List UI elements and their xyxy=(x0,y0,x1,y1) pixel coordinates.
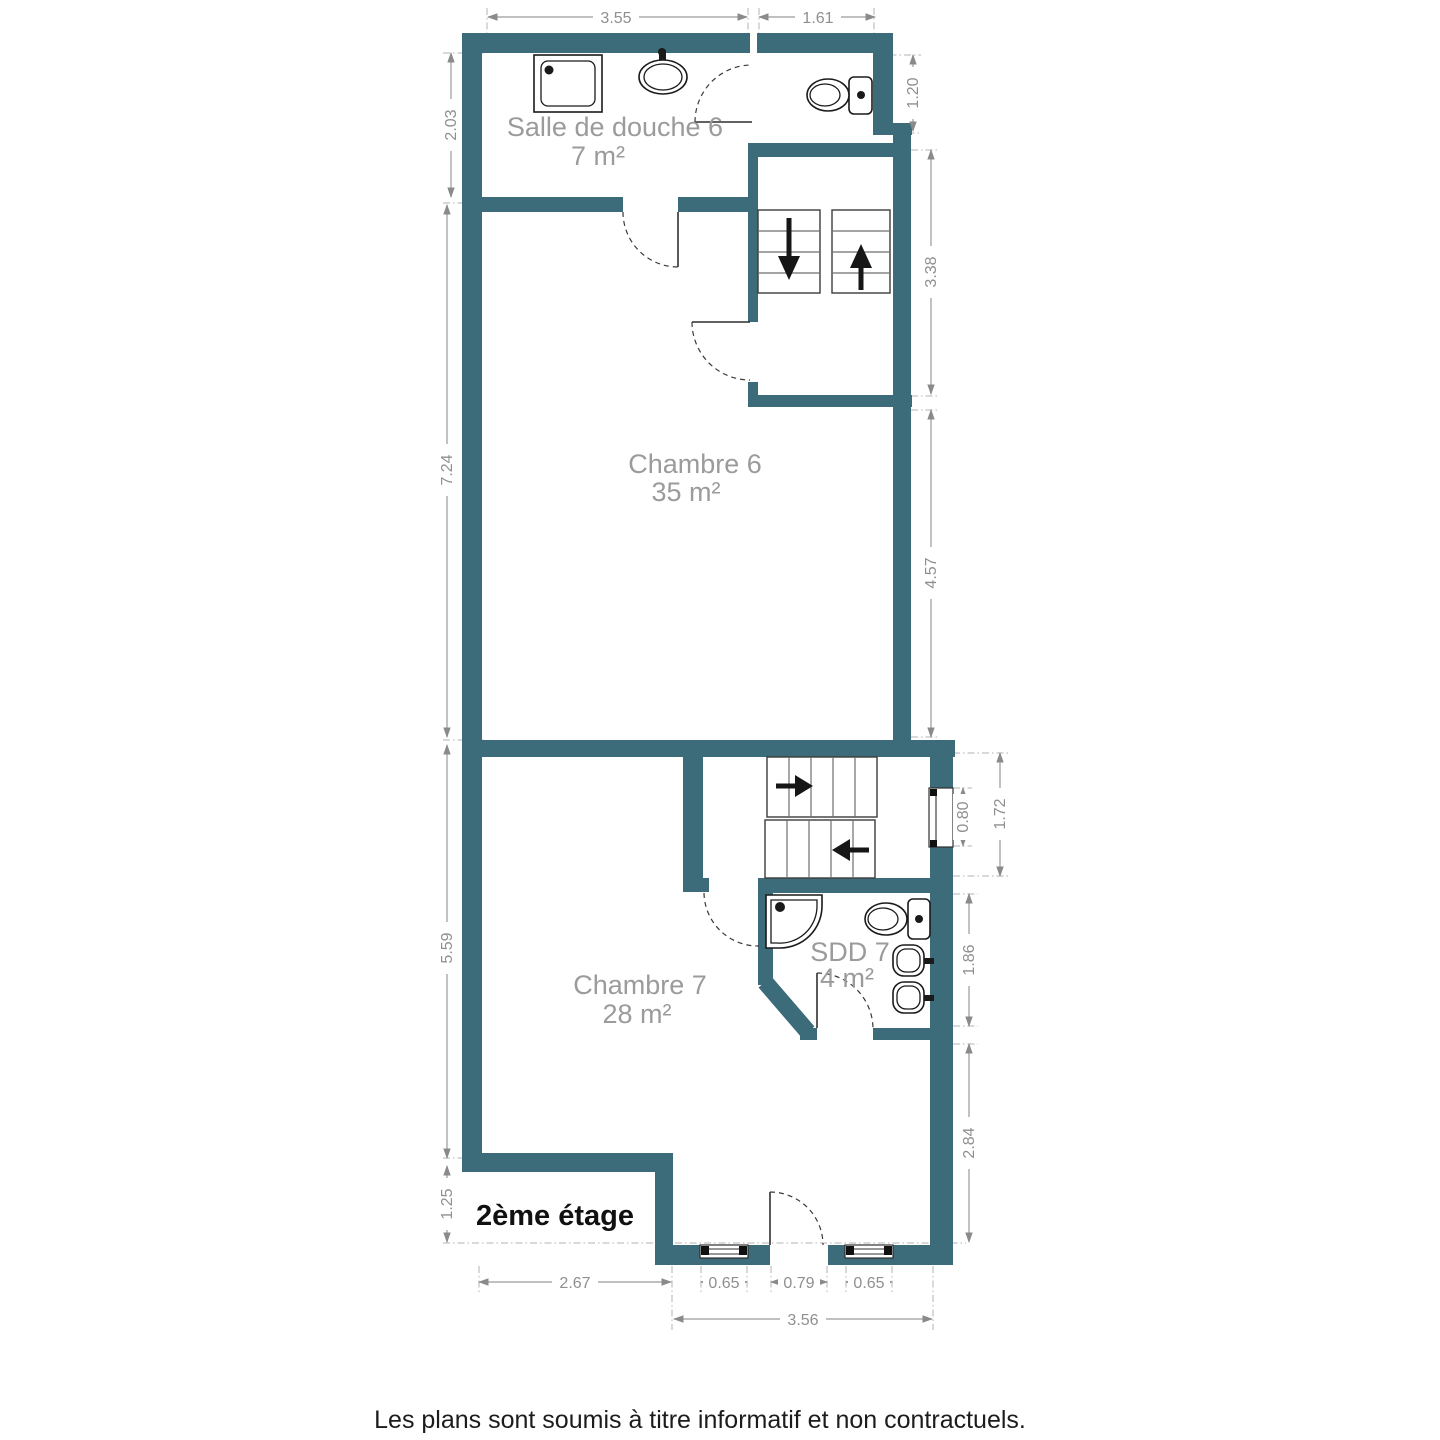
dimension-right-4: 0.80 xyxy=(953,788,973,846)
wall-segment xyxy=(700,1258,748,1265)
wall-segment xyxy=(800,1028,817,1040)
dimension-label: 5.59 xyxy=(439,932,456,963)
room-name: Salle de douche 6 xyxy=(507,112,723,142)
staircase-lower xyxy=(765,757,877,878)
dimension-label: 4.57 xyxy=(923,557,940,588)
door-chambre-6 xyxy=(623,212,678,267)
wall-segment xyxy=(893,1245,953,1265)
room-label-sdd-7: SDD 7 4 m² xyxy=(810,937,890,993)
wall-segment xyxy=(748,395,912,407)
room-area: 28 m² xyxy=(602,999,671,1029)
wall-segment xyxy=(893,131,911,740)
wall-segment-diagonal xyxy=(765,982,808,1032)
room-area: 7 m² xyxy=(571,141,625,171)
dimension-label: 0.79 xyxy=(783,1275,814,1292)
round-basin-icon xyxy=(893,982,934,1013)
toilet-icon-sdd7 xyxy=(865,899,930,939)
dimension-right-1: 1.20 xyxy=(903,55,923,131)
wall-segment xyxy=(748,143,893,157)
dimension-right-5: 1.72 xyxy=(990,753,1010,876)
wall-segment xyxy=(462,197,623,212)
room-name: Chambre 6 xyxy=(628,449,762,479)
wall-segment xyxy=(748,1245,770,1265)
dimension-label: 3.56 xyxy=(787,1312,818,1329)
wall-segment xyxy=(873,1028,933,1040)
dimension-label: 1.25 xyxy=(439,1188,456,1219)
dimension-right-3: 4.57 xyxy=(921,410,941,737)
washbasin-icon xyxy=(639,48,687,94)
dimension-label: 0.65 xyxy=(708,1275,739,1292)
dimension-label: 1.72 xyxy=(992,798,1009,829)
dimension-left-2: 7.24 xyxy=(437,205,457,737)
dimension-label: 0.80 xyxy=(955,801,972,832)
dimension-top-2: 1.61 xyxy=(759,8,875,27)
dimension-bottom-2: 0.65 xyxy=(701,1273,747,1292)
door-chambre-7 xyxy=(704,893,759,946)
dimension-right-6: 1.86 xyxy=(959,894,979,1026)
room-name: Chambre 7 xyxy=(573,970,707,1000)
wall-segment xyxy=(930,847,953,1265)
dimension-label: 2.03 xyxy=(443,109,460,140)
window-right xyxy=(929,788,953,847)
dimension-right-2: 3.38 xyxy=(921,150,941,394)
dimension-label: 2.67 xyxy=(559,1275,590,1292)
dimension-top-1: 3.55 xyxy=(488,8,747,27)
dimension-bottom-1: 2.67 xyxy=(479,1273,671,1292)
wall-segment xyxy=(758,878,933,893)
dimension-label: 7.24 xyxy=(439,454,456,485)
window-bottom-right xyxy=(845,1245,893,1258)
wall-segment xyxy=(930,740,953,788)
window-bottom-left xyxy=(700,1245,748,1258)
dimension-bottom-4: 0.65 xyxy=(846,1273,892,1292)
toilet-icon-wc xyxy=(807,77,872,114)
wall-segment xyxy=(683,878,709,892)
wall-segment xyxy=(845,1258,893,1265)
room-label-chambre-7: Chambre 7 28 m² xyxy=(573,970,707,1029)
dimension-label: 1.86 xyxy=(961,944,978,975)
dimension-label: 2.84 xyxy=(961,1127,978,1158)
dimension-label: 1.20 xyxy=(905,77,922,108)
dimension-left-3: 5.59 xyxy=(437,745,457,1158)
room-area: 35 m² xyxy=(651,477,720,507)
dimension-left-4: 1.25 xyxy=(437,1166,457,1242)
dimension-bottom-5: 3.56 xyxy=(674,1310,932,1329)
dimension-label: 0.65 xyxy=(853,1275,884,1292)
staircase-upper xyxy=(758,210,890,293)
wall-segment xyxy=(828,1245,845,1265)
dimension-left-1: 2.03 xyxy=(441,53,461,197)
wall-segment xyxy=(462,33,750,53)
dimension-bottom-3: 0.79 xyxy=(771,1273,827,1292)
door-stairwell-upper xyxy=(692,322,750,380)
dimension-label: 1.61 xyxy=(802,10,833,27)
wall-segment xyxy=(757,33,893,53)
door-entry-bottom xyxy=(770,1192,823,1245)
dimension-right-7: 2.84 xyxy=(959,1044,979,1242)
wall-segment xyxy=(873,33,893,133)
floor-plan: Salle de douche 6 7 m² Chambre 6 35 m² C… xyxy=(0,0,1440,1440)
wall-segment xyxy=(683,757,703,878)
dimension-label: 3.38 xyxy=(923,256,940,287)
floor-title: 2ème étage xyxy=(476,1200,634,1232)
room-label-salle-de-douche-6: Salle de douche 6 7 m² xyxy=(507,112,723,171)
shower-tray-icon xyxy=(534,55,602,112)
room-area: 4 m² xyxy=(820,963,874,993)
wall-segment xyxy=(678,197,758,212)
wall-segment xyxy=(748,143,758,322)
round-basin-icon xyxy=(893,945,934,976)
wall-segment xyxy=(655,1245,700,1265)
disclaimer-text: Les plans sont soumis à titre informatif… xyxy=(0,1406,1400,1435)
wall-segment xyxy=(462,740,955,757)
dimension-label: 3.55 xyxy=(600,10,631,27)
wall-segment xyxy=(462,1153,673,1172)
room-label-chambre-6: Chambre 6 35 m² xyxy=(628,449,762,507)
